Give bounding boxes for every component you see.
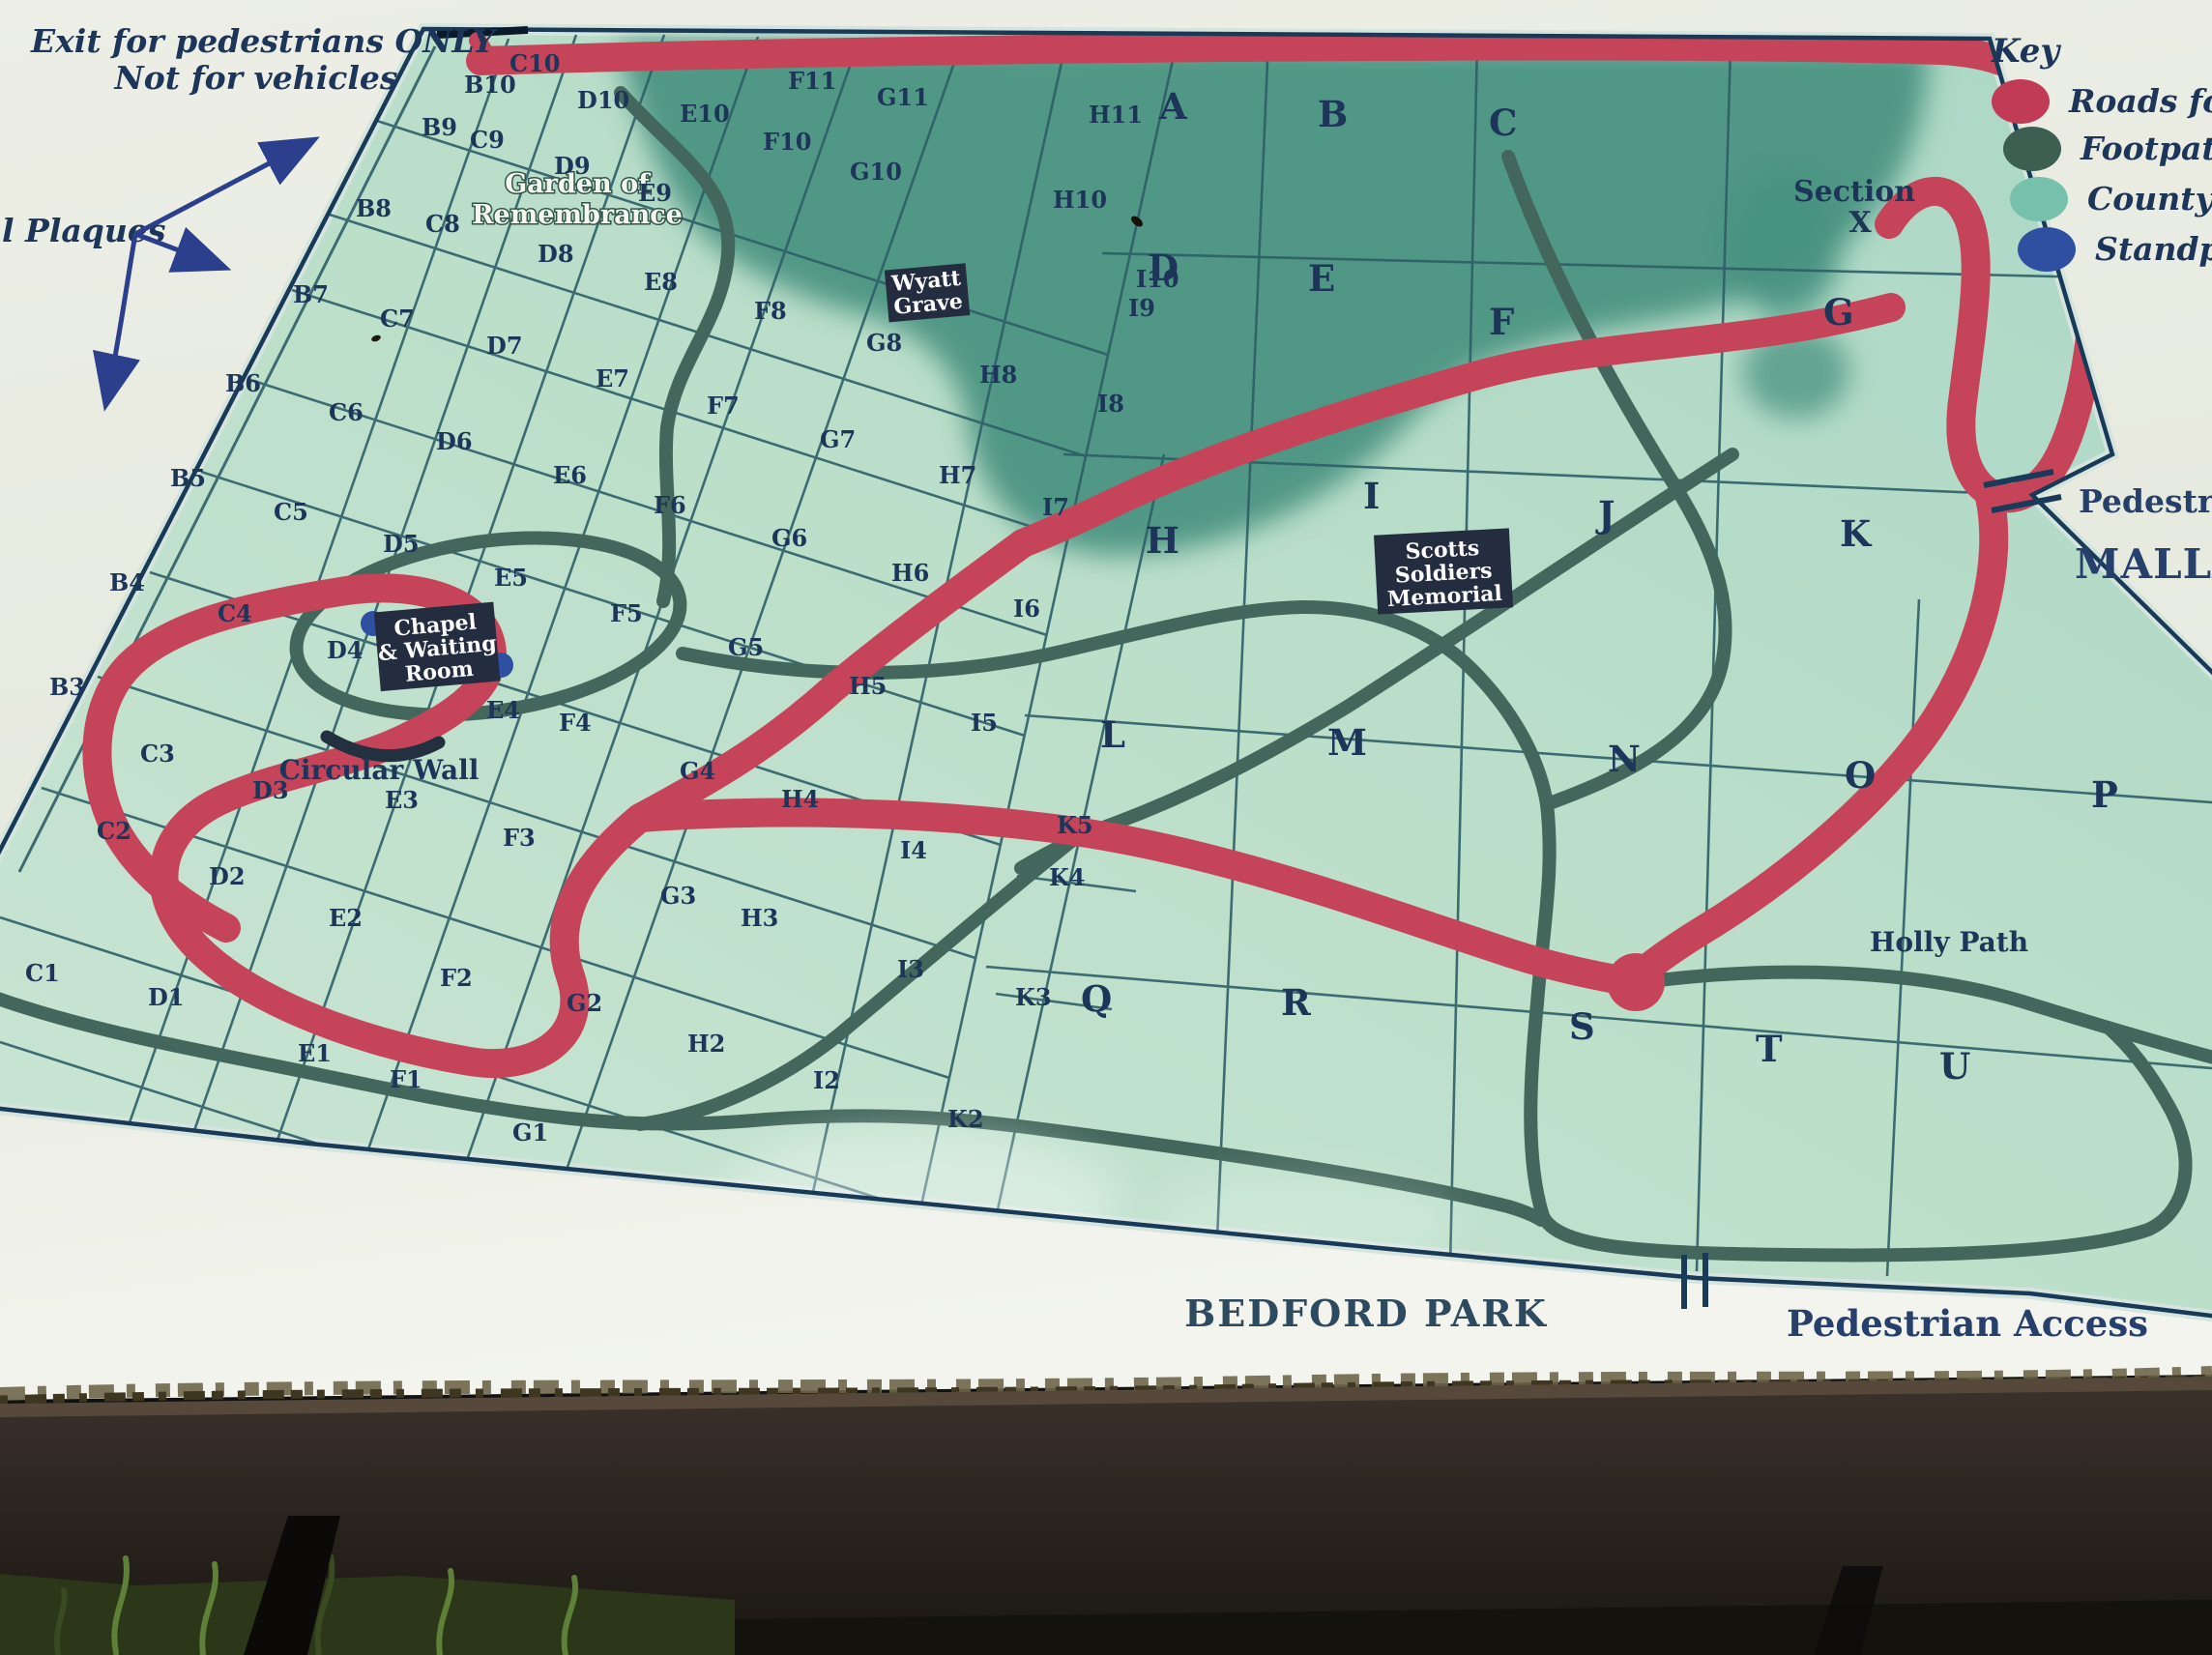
exit-note-line1: Exit for pedestrians ONLY (30, 22, 499, 60)
grid-cell-label-C2: C2 (97, 817, 131, 845)
section-letter-label-C: C (1489, 102, 1517, 144)
key-swatch-footpaths (2003, 127, 2061, 171)
grid-cell-label-E4: E4 (486, 696, 520, 724)
grid-cell-label-B4: B4 (109, 568, 145, 596)
grid-cell-label-F4: F4 (559, 709, 592, 737)
grid-cell-label-C5: C5 (274, 498, 308, 526)
grid-cell-label-I4: I4 (900, 836, 927, 864)
grid-cell-label-B5: B5 (170, 464, 206, 492)
key-label-standpipes: Standpip (2095, 230, 2212, 268)
grid-cell-label-D2: D2 (209, 862, 246, 890)
grid-cell-label-B3: B3 (49, 673, 85, 701)
grid-cell-label-H7: H7 (939, 461, 976, 489)
grid-cell-label-F6: F6 (654, 491, 686, 519)
sign-frame-and-ground (0, 1373, 2212, 1655)
grid-cell-label-E10: E10 (680, 100, 730, 128)
grid-cell-label-E7: E7 (596, 364, 629, 392)
grid-cell-label-D6: D6 (436, 427, 473, 455)
grid-cell-label-B9: B9 (422, 113, 457, 141)
grid-cell-label-H5: H5 (849, 672, 887, 700)
section-x-label: Section (1793, 175, 1915, 209)
grid-cell-label-D5: D5 (383, 530, 420, 558)
grid-cell-label-F5: F5 (610, 599, 643, 627)
section-letter-label-O: O (1845, 754, 1876, 797)
grid-cell-label-C6: C6 (329, 398, 364, 426)
grid-cell-label-E5: E5 (494, 564, 528, 592)
road-turning-circle (1607, 953, 1665, 1011)
grid-cell-label-G6: G6 (771, 524, 807, 552)
grid-cell-label-F11: F11 (788, 67, 836, 95)
grid-cell-label-I8: I8 (1097, 390, 1124, 418)
mallard-road-label: MALLAR (2075, 540, 2212, 588)
section-letter-label-M: M (1327, 721, 1367, 764)
grid-cell-label-C8: C8 (425, 210, 460, 238)
grid-cell-label-C7: C7 (380, 305, 415, 333)
grid-cell-label-G3: G3 (660, 882, 696, 910)
key-swatch-standpipes (2018, 227, 2076, 272)
grid-cell-label-E6: E6 (553, 461, 587, 489)
bedford-park-label: BEDFORD PARK (1184, 1292, 1548, 1335)
key-label-roads: Roads for v (2068, 82, 2212, 120)
poi-chapel-waiting-room: Chapel & Waiting Room (374, 602, 501, 691)
grid-cell-label-D9: D9 (554, 152, 591, 180)
grid-cell-label-H6: H6 (891, 559, 929, 587)
grid-cell-label-C9: C9 (470, 126, 505, 154)
grid-cell-label-C1: C1 (25, 959, 60, 987)
grid-cell-label-G7: G7 (820, 425, 856, 453)
grid-cell-label-F1: F1 (390, 1065, 422, 1093)
photo-of-cemetery-map-sign: Wyatt Grave Scotts Soldiers Memorial Cha… (0, 0, 2212, 1655)
grid-cell-label-F3: F3 (503, 824, 536, 852)
section-letter-label-A: A (1158, 85, 1188, 128)
grid-cell-label-H2: H2 (687, 1030, 725, 1058)
grid-cell-label-H11: H11 (1089, 101, 1143, 129)
grid-cell-label-H8: H8 (979, 361, 1017, 389)
key-label-footpaths: Footpaths (2080, 130, 2212, 167)
poi-scotts-soldiers-memorial: Scotts Soldiers Memorial (1374, 528, 1513, 614)
grid-cell-label-D8: D8 (538, 240, 574, 268)
grid-cell-label-F10: F10 (763, 128, 811, 156)
grid-cell-label-D7: D7 (486, 332, 523, 360)
grid-cell-label-I2: I2 (813, 1066, 840, 1094)
key-label-county: County W (2087, 180, 2212, 218)
grid-cell-label-B6: B6 (225, 369, 261, 397)
grid-cell-label-D1: D1 (148, 983, 185, 1011)
section-letter-label-G: G (1823, 291, 1854, 334)
map-area (0, 29, 2212, 1328)
grid-cell-label-E2: E2 (329, 904, 363, 932)
grid-cell-label-F7: F7 (707, 392, 740, 420)
grid-cell-label-G2: G2 (567, 989, 602, 1017)
section-letter-label-F: F (1489, 301, 1514, 343)
grid-cell-label-G4: G4 (680, 757, 715, 785)
circular-wall-label: Circular Wall (279, 754, 480, 786)
section-letter-label-U: U (1939, 1045, 1970, 1088)
grid-cell-label-F2: F2 (440, 964, 473, 992)
grid-cell-label-F8: F8 (754, 297, 787, 325)
section-letter-label-D: D (1148, 247, 1179, 289)
grid-cell-label-D3: D3 (252, 776, 289, 804)
grid-cell-label-G5: G5 (728, 633, 764, 661)
section-letter-label-L: L (1100, 713, 1125, 756)
map-sign-svg: Wyatt Grave Scotts Soldiers Memorial Cha… (0, 0, 2212, 1655)
grid-cell-label-G1: G1 (512, 1118, 548, 1147)
grid-cell-label-G8: G8 (866, 329, 902, 357)
section-letter-label-E: E (1308, 257, 1335, 300)
section-letter-label-I: I (1363, 475, 1380, 517)
section-letter-label-R: R (1281, 981, 1311, 1024)
grid-cell-label-I3: I3 (897, 955, 924, 983)
grid-cell-label-I6: I6 (1013, 595, 1040, 623)
grid-cell-label-E8: E8 (644, 268, 678, 296)
grid-cell-label-E1: E1 (298, 1039, 332, 1067)
holly-path-label: Holly Path (1870, 926, 2028, 958)
grid-cell-label-K3: K3 (1015, 983, 1052, 1011)
section-letter-label-S: S (1569, 1005, 1595, 1048)
grid-cell-label-C3: C3 (140, 740, 175, 768)
grid-cell-label-C10: C10 (509, 49, 561, 77)
poi-wyatt-grave: Wyatt Grave (885, 263, 970, 322)
grid-cell-label-I5: I5 (971, 709, 998, 737)
section-letter-label-K: K (1840, 512, 1873, 555)
grid-cell-label-D10: D10 (577, 86, 629, 114)
grid-cell-label-G10: G10 (850, 158, 902, 186)
section-letter-label-Q: Q (1081, 977, 1112, 1020)
key-title: Key (1991, 32, 2061, 71)
grid-cell-label-E9: E9 (638, 179, 672, 207)
grid-cell-label-E3: E3 (385, 786, 419, 814)
grid-cell-label-H10: H10 (1053, 186, 1107, 214)
grid-cell-label-B10: B10 (464, 71, 516, 99)
key-swatch-roads (1992, 79, 2050, 124)
grid-cell-label-K5: K5 (1057, 811, 1093, 839)
exit-note-line2: Not for vehicles (114, 59, 398, 97)
grid-cell-label-B8: B8 (356, 194, 392, 222)
section-letter-label-T: T (1756, 1028, 1783, 1070)
grid-cell-label-K4: K4 (1049, 863, 1086, 891)
section-letter-label-J: J (1595, 493, 1615, 536)
key-swatch-county (2010, 177, 2068, 221)
grid-cell-label-I9: I9 (1128, 294, 1155, 322)
section-letter-label-H: H (1146, 519, 1179, 562)
section-letter-label-N: N (1608, 738, 1641, 780)
grid-cell-label-D4: D4 (327, 636, 364, 664)
grid-cell-label-C4: C4 (218, 599, 252, 627)
grid-cell-label-B7: B7 (293, 280, 329, 308)
section-letter-label-P: P (2091, 773, 2118, 816)
grid-cell-label-K2: K2 (947, 1105, 984, 1133)
pedestrian-right-label: Pedestrian (2079, 482, 2212, 520)
grid-cell-label-I7: I7 (1042, 493, 1069, 521)
grid-cell-label-H4: H4 (781, 785, 819, 813)
pedestrian-access-label: Pedestrian Access (1787, 1302, 2148, 1345)
section-x-label: X (1848, 206, 1872, 240)
grid-cell-label-H3: H3 (741, 904, 778, 932)
section-letter-label-B: B (1318, 93, 1348, 135)
grid-cell-label-G11: G11 (877, 83, 929, 111)
